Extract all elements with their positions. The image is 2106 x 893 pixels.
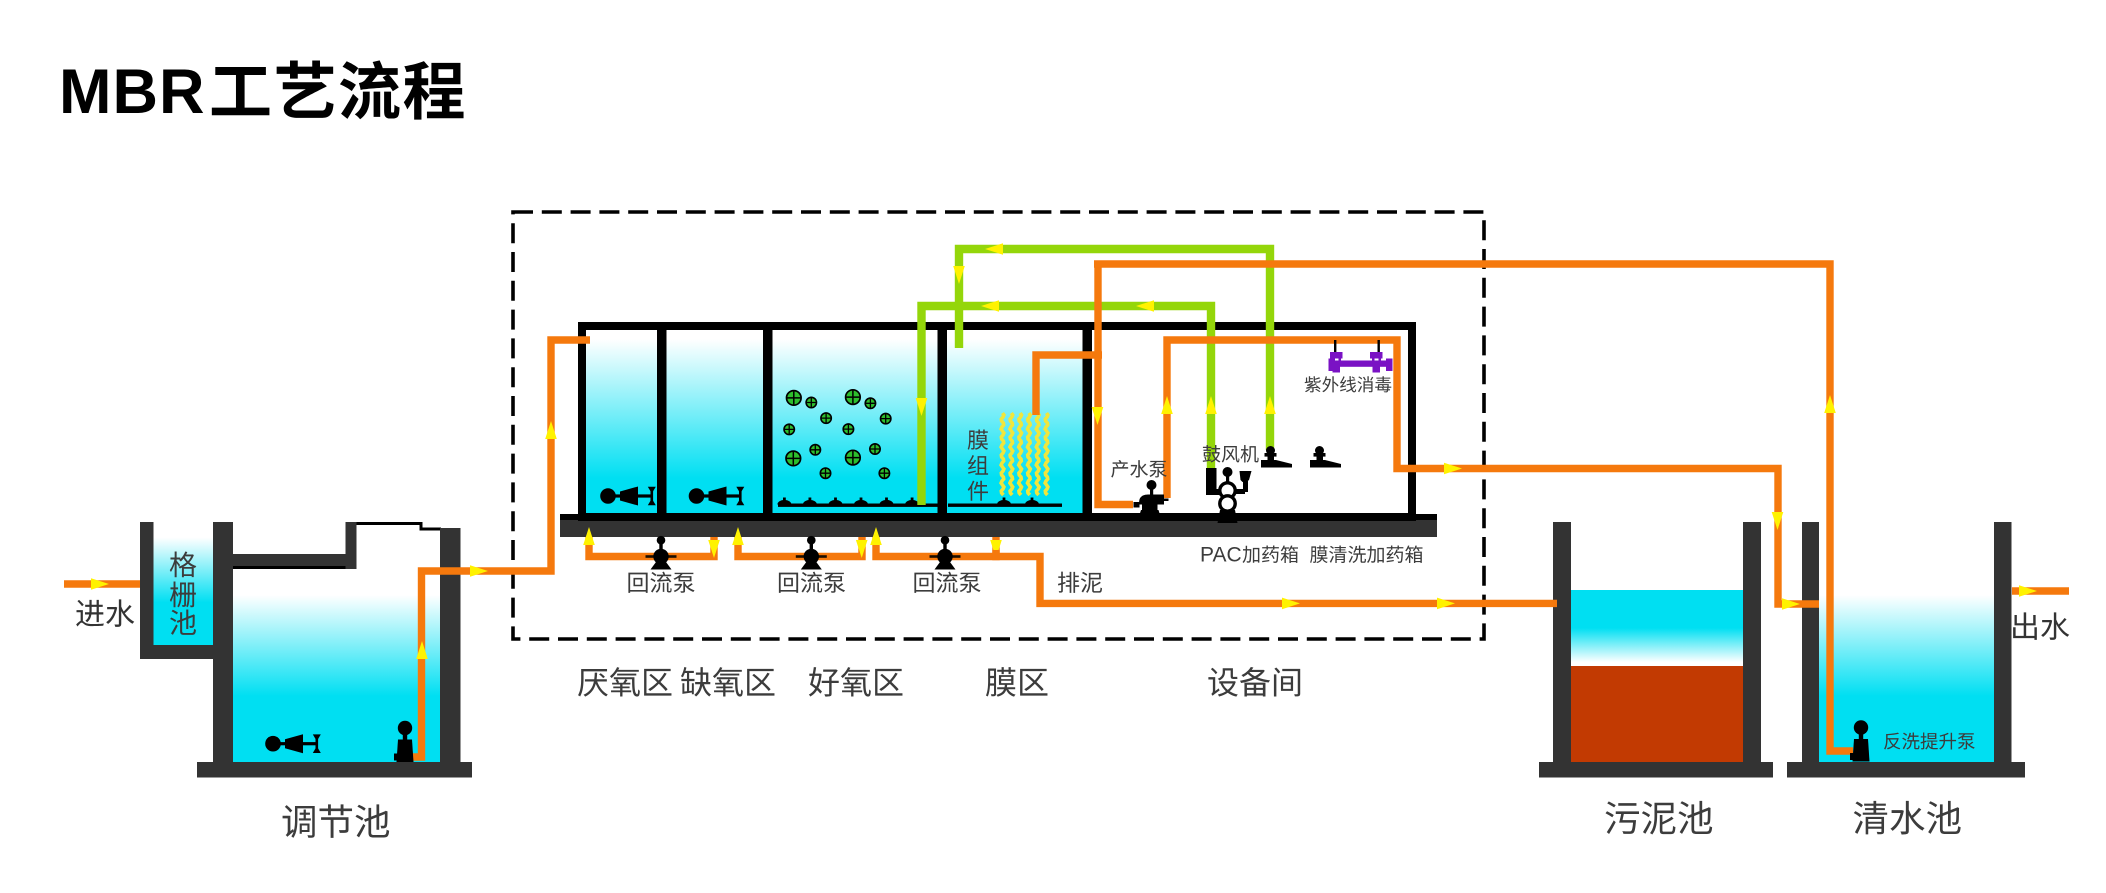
- svg-text:PAC: PAC: [1200, 544, 1242, 567]
- svg-text:MBR: MBR: [59, 57, 205, 127]
